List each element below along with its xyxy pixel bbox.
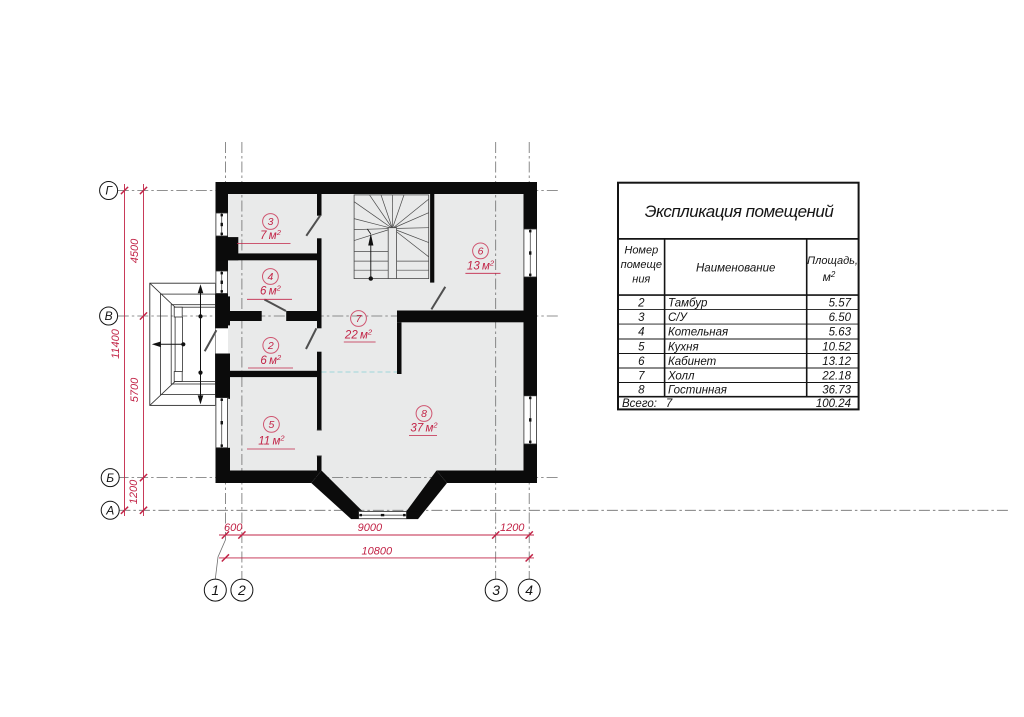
- svg-text:600: 600: [224, 522, 243, 534]
- svg-text:5700: 5700: [129, 377, 141, 402]
- svg-text:Номер: Номер: [624, 245, 658, 257]
- svg-text:Кабинет: Кабинет: [668, 356, 717, 368]
- svg-text:6.50: 6.50: [829, 312, 852, 324]
- svg-text:Котельная: Котельная: [668, 327, 728, 339]
- svg-text:36.73: 36.73: [822, 385, 851, 397]
- svg-text:10800: 10800: [362, 546, 393, 558]
- svg-text:8: 8: [638, 385, 645, 397]
- svg-text:4: 4: [267, 271, 273, 283]
- svg-text:100.24: 100.24: [816, 398, 851, 410]
- svg-text:1200: 1200: [500, 522, 525, 534]
- svg-text:В: В: [105, 309, 113, 323]
- svg-text:7: 7: [638, 370, 645, 382]
- svg-text:А: А: [105, 504, 114, 518]
- svg-text:8: 8: [421, 408, 427, 420]
- svg-text:5: 5: [268, 419, 274, 431]
- svg-text:3: 3: [492, 582, 500, 598]
- svg-text:5: 5: [638, 341, 645, 353]
- svg-text:5.57: 5.57: [829, 297, 852, 309]
- svg-text:6: 6: [638, 356, 645, 368]
- svg-text:Экспликация помещений: Экспликация помещений: [645, 202, 835, 221]
- svg-text:помеще: помеще: [621, 259, 662, 271]
- svg-text:3: 3: [638, 312, 645, 324]
- svg-text:Тамбур: Тамбур: [668, 297, 708, 309]
- svg-text:4: 4: [525, 582, 533, 598]
- svg-text:5.63: 5.63: [829, 327, 852, 339]
- svg-text:1: 1: [211, 582, 219, 598]
- svg-text:9000: 9000: [358, 522, 383, 534]
- svg-text:ния: ния: [632, 274, 650, 286]
- svg-text:Всего: 7: Всего: 7: [622, 398, 673, 410]
- svg-text:Площадь,: Площадь,: [807, 255, 858, 267]
- svg-text:6: 6: [478, 246, 484, 258]
- svg-text:2: 2: [237, 582, 246, 598]
- svg-text:2: 2: [267, 340, 274, 352]
- svg-text:11400: 11400: [110, 328, 122, 359]
- svg-text:С/У: С/У: [668, 312, 689, 324]
- svg-text:Кухня: Кухня: [668, 341, 699, 353]
- svg-text:Наименование: Наименование: [696, 263, 775, 275]
- svg-text:4500: 4500: [129, 238, 141, 263]
- svg-text:3: 3: [268, 216, 274, 228]
- svg-text:Б: Б: [106, 471, 114, 485]
- svg-text:13.12: 13.12: [822, 356, 851, 368]
- svg-text:10.52: 10.52: [822, 341, 851, 353]
- svg-text:1200: 1200: [128, 479, 140, 504]
- svg-text:4: 4: [638, 327, 644, 339]
- svg-text:Холл: Холл: [667, 370, 695, 382]
- svg-text:22.18: 22.18: [821, 370, 851, 382]
- svg-text:Гостинная: Гостинная: [668, 385, 727, 397]
- svg-text:2: 2: [637, 297, 645, 309]
